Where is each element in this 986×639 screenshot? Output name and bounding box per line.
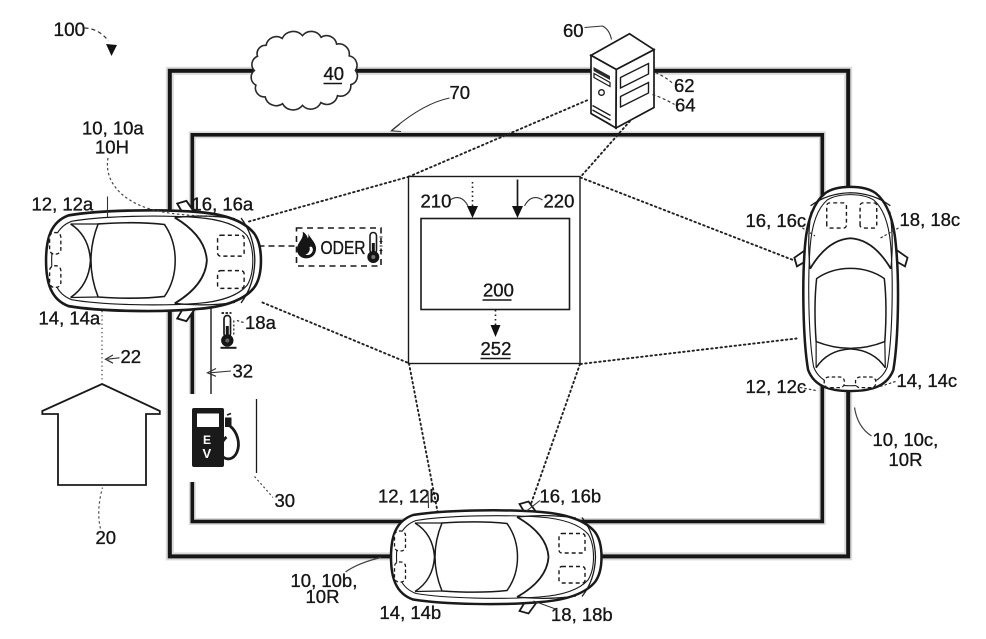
svg-text:16, 16b: 16, 16b — [540, 486, 602, 507]
svg-text:32: 32 — [233, 361, 254, 382]
svg-text:62: 62 — [674, 75, 695, 96]
svg-text:14, 14a: 14, 14a — [39, 308, 101, 329]
svg-text:64: 64 — [675, 95, 696, 116]
svg-text:18, 18c: 18, 18c — [900, 209, 961, 230]
svg-text:18, 18b: 18, 18b — [551, 604, 613, 625]
svg-text:20: 20 — [96, 527, 117, 548]
svg-text:ODER: ODER — [321, 237, 366, 258]
svg-text:16, 16a: 16, 16a — [192, 194, 254, 215]
svg-text:220: 220 — [544, 191, 575, 212]
svg-text:16, 16c: 16, 16c — [746, 210, 807, 231]
svg-text:10, 10a: 10, 10a — [82, 118, 144, 139]
svg-text:100: 100 — [54, 20, 86, 41]
svg-text:30: 30 — [275, 490, 296, 511]
svg-text:10, 10c,: 10, 10c, — [873, 429, 939, 450]
svg-text:12, 12a: 12, 12a — [32, 194, 94, 215]
svg-text:200: 200 — [483, 280, 514, 301]
svg-text:10R: 10R — [889, 449, 923, 470]
svg-text:12, 12b: 12, 12b — [378, 486, 440, 507]
svg-text:60: 60 — [563, 20, 584, 41]
svg-text:210: 210 — [421, 191, 452, 212]
svg-text:E: E — [203, 433, 211, 447]
svg-text:14, 14c: 14, 14c — [897, 370, 958, 391]
svg-text:40: 40 — [324, 63, 345, 84]
svg-text:14, 14b: 14, 14b — [380, 602, 442, 623]
svg-text:10H: 10H — [95, 137, 129, 158]
svg-text:10R: 10R — [306, 586, 340, 607]
svg-text:18a: 18a — [245, 312, 277, 333]
svg-text:22: 22 — [121, 346, 142, 367]
svg-text:12, 12c: 12, 12c — [746, 376, 807, 397]
svg-text:252: 252 — [481, 338, 512, 359]
svg-text:70: 70 — [450, 82, 471, 103]
svg-text:V: V — [203, 446, 212, 461]
